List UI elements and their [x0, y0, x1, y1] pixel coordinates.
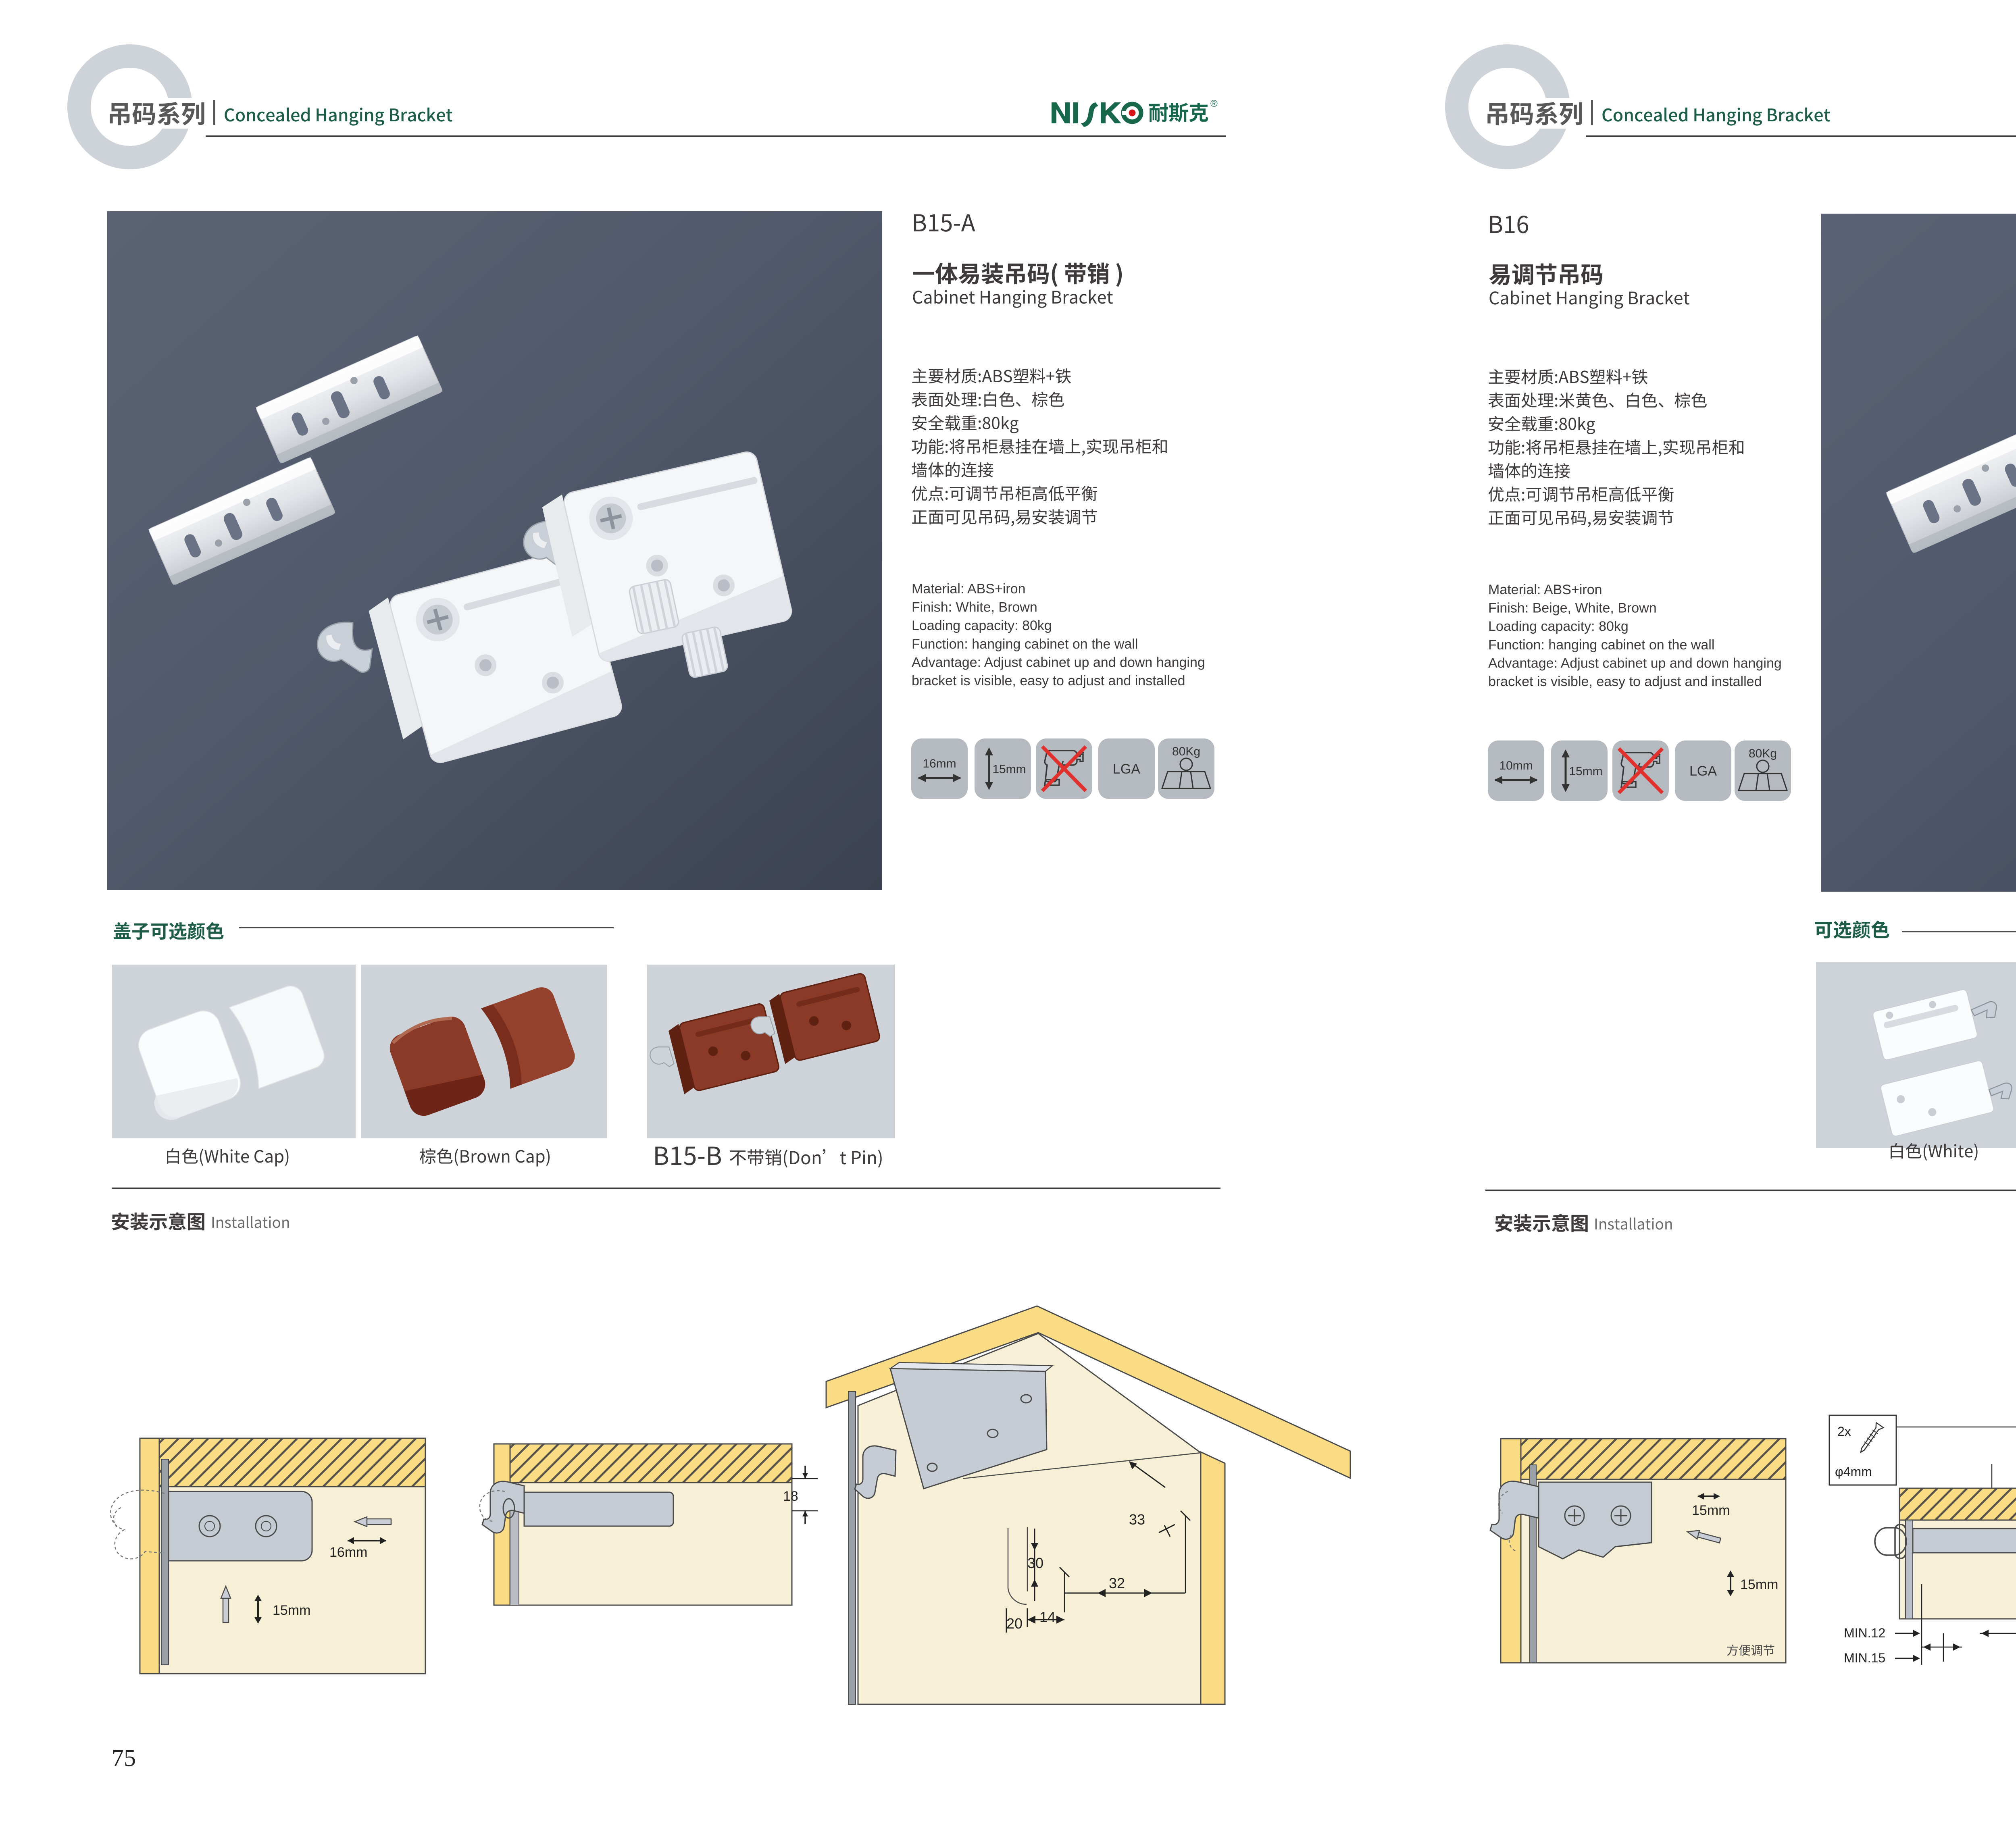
svg-text:15mm: 15mm [273, 1603, 310, 1618]
svg-text:Function: hanging cabinet on t: Function: hanging cabinet on the wall [912, 636, 1138, 652]
svg-text:30: 30 [1027, 1555, 1043, 1571]
svg-text:Finish: Beige, White, Brown: Finish: Beige, White, Brown [1488, 601, 1657, 616]
svg-text:Material: ABS+iron: Material: ABS+iron [912, 581, 1026, 597]
svg-text:bracket is visible, easy to ad: bracket is visible, easy to adjust and i… [912, 673, 1185, 688]
svg-text:φ4mm: φ4mm [1835, 1464, 1872, 1479]
svg-text:Advantage: Adjust cabinet up a: Advantage: Adjust cabinet up and down ha… [1488, 655, 1782, 671]
svg-text:MIN.12: MIN.12 [1844, 1626, 1885, 1640]
svg-text:33: 33 [1129, 1511, 1145, 1528]
svg-text:20: 20 [1006, 1615, 1023, 1632]
svg-text:75: 75 [112, 1745, 136, 1771]
svg-text:16mm: 16mm [923, 757, 956, 770]
svg-text:80Kg: 80Kg [1749, 747, 1777, 760]
svg-text:15mm: 15mm [992, 763, 1026, 776]
svg-text:Loading capacity: 80kg: Loading capacity: 80kg [1488, 619, 1629, 634]
svg-text:32: 32 [1109, 1575, 1125, 1591]
svg-text:15mm: 15mm [1692, 1503, 1730, 1518]
svg-text:LGA: LGA [1689, 763, 1717, 779]
svg-text:Material: ABS+iron: Material: ABS+iron [1488, 582, 1602, 597]
svg-text:MIN.15: MIN.15 [1844, 1651, 1885, 1665]
svg-text:15mm: 15mm [1569, 765, 1602, 778]
svg-text:Advantage: Adjust cabinet up a: Advantage: Adjust cabinet up and down ha… [912, 655, 1205, 670]
svg-text:Loading capacity: 80kg: Loading capacity: 80kg [912, 618, 1052, 633]
svg-text:®: ® [1210, 98, 1218, 109]
svg-text:15mm: 15mm [1740, 1577, 1778, 1592]
svg-text:Finish: White, Brown: Finish: White, Brown [912, 600, 1037, 615]
svg-text:Function: hanging cabinet on t: Function: hanging cabinet on the wall [1488, 637, 1714, 653]
svg-text:10mm: 10mm [1499, 759, 1533, 772]
svg-text:LGA: LGA [1113, 761, 1140, 777]
svg-text:2x: 2x [1837, 1424, 1851, 1439]
svg-text:18: 18 [783, 1489, 798, 1504]
svg-text:bracket is visible, easy to ad: bracket is visible, easy to adjust and i… [1488, 674, 1762, 689]
svg-text:16mm: 16mm [329, 1545, 367, 1560]
svg-text:14: 14 [1039, 1609, 1056, 1625]
svg-text:80Kg: 80Kg [1172, 745, 1200, 758]
